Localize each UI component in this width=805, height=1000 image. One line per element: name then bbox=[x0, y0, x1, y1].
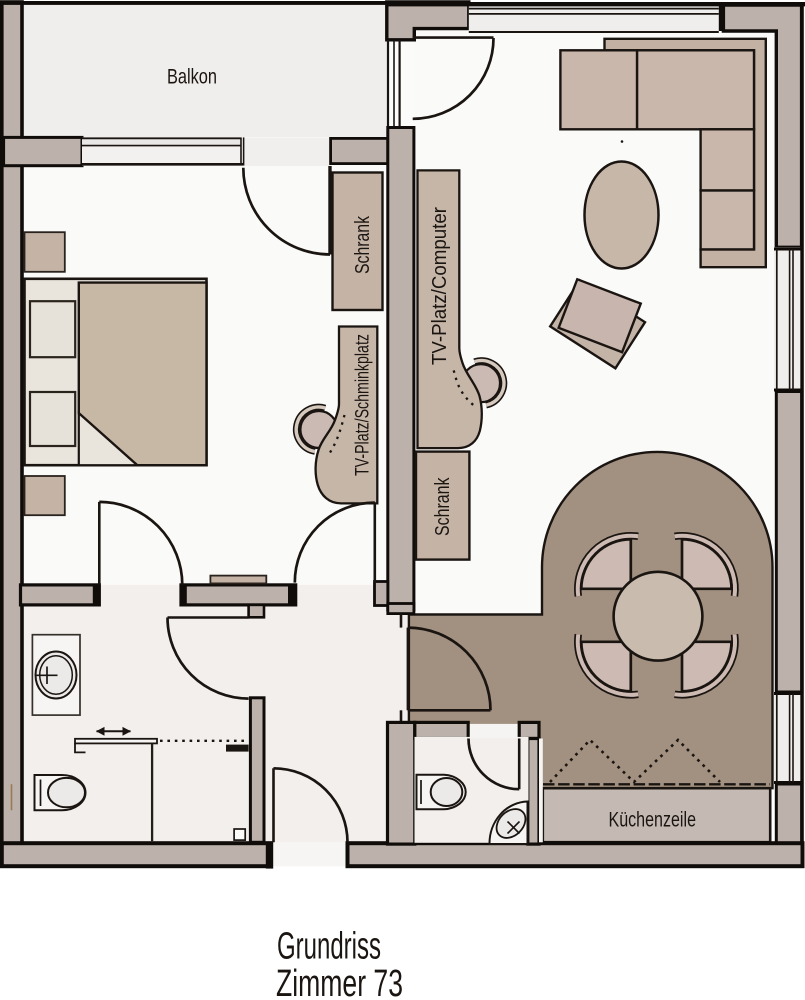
svg-text:Schrank: Schrank bbox=[352, 215, 374, 274]
svg-text:Zimmer 73: Zimmer 73 bbox=[276, 963, 403, 1000]
svg-text:Schrank: Schrank bbox=[432, 477, 454, 536]
svg-text:Küchenzeile: Küchenzeile bbox=[609, 808, 697, 832]
svg-text:TV-Platz/Schminkplatz: TV-Platz/Schminkplatz bbox=[352, 334, 374, 476]
svg-text:Balkon: Balkon bbox=[167, 65, 217, 88]
svg-text:TV-Platz/Computer: TV-Platz/Computer bbox=[429, 207, 451, 365]
svg-text:Grundriss: Grundriss bbox=[277, 926, 381, 968]
